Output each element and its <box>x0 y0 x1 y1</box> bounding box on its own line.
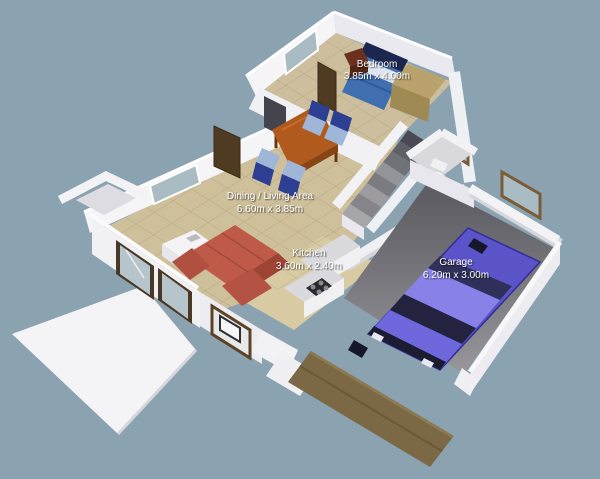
burner <box>317 290 322 295</box>
burner <box>324 286 329 291</box>
burner <box>319 281 324 286</box>
floorplan-3d-view: Bedroom 3.85m x 4.00m Dining / Living Ar… <box>0 0 600 479</box>
bedroom-label: Bedroom <box>357 59 398 70</box>
garage-label: Garage <box>439 257 473 268</box>
kitchen-label: Kitchen <box>292 248 325 259</box>
burner <box>311 285 316 290</box>
kitchen-dims: 3.60m x 2.40m <box>276 261 342 272</box>
dining-dims: 6.60m x 3.85m <box>237 204 303 215</box>
floorplan-canvas: Bedroom 3.85m x 4.00m Dining / Living Ar… <box>0 0 600 479</box>
dining-label: Dining / Living Area <box>227 191 314 202</box>
garage-dims: 6.20m x 3.00m <box>423 270 489 281</box>
bedroom-dims: 3.85m x 4.00m <box>344 71 410 82</box>
